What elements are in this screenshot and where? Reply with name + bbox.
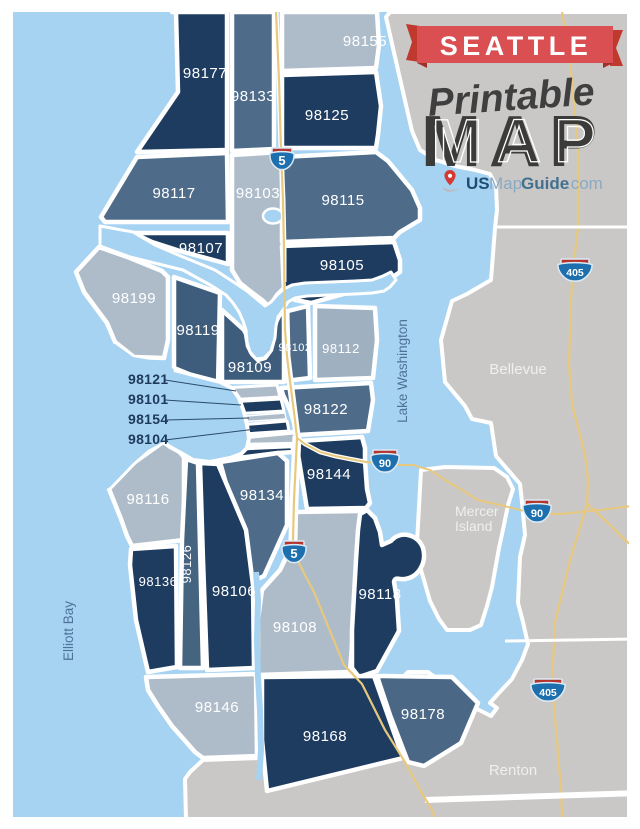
svg-text:98199: 98199 [112,290,156,307]
svg-text:98115: 98115 [321,192,364,209]
svg-text:SEATTLE: SEATTLE [440,31,593,61]
svg-text:Map: Map [489,174,522,193]
svg-text:98119: 98119 [176,322,219,339]
svg-text:Island: Island [455,518,492,534]
svg-text:.com: .com [566,174,603,193]
svg-text:405: 405 [539,687,557,699]
svg-text:P: P [555,107,596,175]
svg-text:98146: 98146 [195,699,239,716]
svg-text:Guide: Guide [521,174,569,193]
svg-text:Lake Washington: Lake Washington [395,319,410,423]
svg-text:98177: 98177 [183,65,227,82]
svg-text:98125: 98125 [305,107,349,124]
svg-text:90: 90 [531,508,543,520]
svg-text:98134: 98134 [240,487,284,504]
svg-text:98102: 98102 [278,342,311,354]
svg-text:98121: 98121 [128,371,168,387]
svg-text:98112: 98112 [322,341,360,356]
svg-text:98118: 98118 [358,586,401,603]
svg-text:98103: 98103 [236,185,280,202]
svg-text:5: 5 [278,153,285,168]
svg-text:98101: 98101 [128,391,168,407]
svg-text:98109: 98109 [228,359,272,376]
svg-text:98117: 98117 [152,185,195,202]
svg-text:M: M [432,107,483,175]
svg-text:90: 90 [379,458,391,470]
svg-text:98154: 98154 [128,411,168,427]
svg-text:Renton: Renton [489,762,537,779]
svg-text:5: 5 [290,546,297,561]
svg-text:98178: 98178 [401,706,445,723]
svg-text:98122: 98122 [304,401,348,418]
svg-text:US: US [466,174,490,193]
svg-text:Mercer: Mercer [455,503,499,519]
svg-text:98136: 98136 [139,574,178,589]
svg-text:98104: 98104 [128,431,168,447]
svg-text:A: A [497,107,541,175]
svg-text:98107: 98107 [179,240,223,257]
svg-text:98126: 98126 [179,545,194,584]
svg-text:98155: 98155 [343,33,387,50]
svg-text:98105: 98105 [320,257,364,274]
svg-text:98116: 98116 [126,491,169,508]
svg-text:98168: 98168 [303,728,347,745]
svg-text:98133: 98133 [231,88,275,105]
svg-text:Bellevue: Bellevue [489,361,547,378]
svg-text:Elliott Bay: Elliott Bay [61,601,76,661]
svg-text:98108: 98108 [273,619,317,636]
svg-text:98144: 98144 [307,466,351,483]
svg-text:405: 405 [566,267,584,279]
svg-text:98106: 98106 [212,583,256,600]
